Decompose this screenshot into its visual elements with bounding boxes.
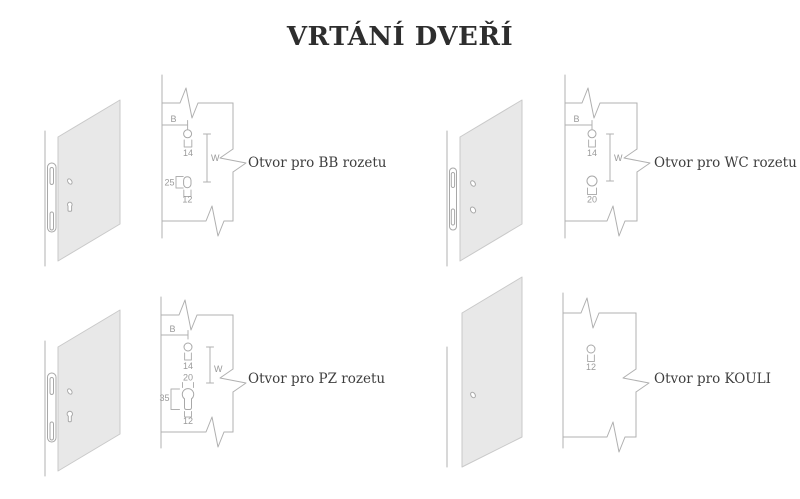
door-panel	[462, 277, 522, 467]
hole-14-text: 14	[587, 148, 597, 158]
cylinder-height-text: 35	[159, 393, 169, 403]
cylinder-height-extension	[171, 389, 180, 410]
latch	[451, 173, 454, 188]
slot-hole	[184, 177, 191, 188]
diagram-bottom-edge-with-break	[161, 417, 233, 447]
cylinder-top-extension	[183, 383, 194, 388]
dimension-b-text: B	[169, 324, 175, 334]
diagram-bottom-edge-with-break	[563, 422, 636, 452]
hole-12-text: 12	[586, 362, 596, 372]
door-illustration-wc	[447, 100, 522, 266]
deadbolt	[50, 422, 54, 440]
diagram-canvas: B 14 W 25 12	[0, 0, 800, 499]
hole-14	[588, 130, 596, 138]
hole-14-text: 14	[183, 148, 193, 158]
door-illustration-bb	[45, 100, 120, 266]
drilling-diagram-kouli: 12	[563, 293, 649, 452]
label-bb-rosette: Otvor pro BB rozetu	[248, 155, 386, 171]
dimension-b-text: B	[573, 114, 579, 124]
diagram-top-edge-with-break	[563, 298, 636, 328]
hole-14	[184, 130, 192, 138]
hole-14-text: 14	[183, 361, 193, 371]
deadbolt	[50, 212, 54, 230]
label-pz-rosette: Otvor pro PZ rozetu	[248, 371, 385, 387]
door-drilling-diagram-page: VRTÁNÍ DVEŘÍ B 14	[0, 0, 800, 499]
hole-14-extension	[589, 140, 596, 147]
break-mark	[220, 369, 246, 392]
break-mark	[624, 149, 650, 172]
dimension-b-text: B	[170, 114, 176, 124]
dimension-w-text: W	[614, 153, 623, 163]
diagram-bottom-edge-with-break	[565, 206, 637, 236]
slot-width-text: 12	[182, 195, 192, 205]
drilling-diagram-bb: B 14 W 25 12	[162, 75, 246, 238]
door-illustration-kouli	[447, 277, 522, 467]
deadbolt	[451, 209, 454, 225]
hole-14	[184, 343, 192, 351]
break-mark	[623, 369, 649, 392]
door-panel	[460, 100, 522, 261]
hole-12-extension	[588, 355, 595, 362]
latch	[50, 378, 54, 395]
hole-14-extension	[185, 353, 192, 360]
hole-14-extension	[184, 140, 192, 147]
label-wc-rosette: Otvor pro WC rozetu	[654, 155, 797, 171]
latch	[50, 168, 54, 185]
drilling-diagram-wc: B 14 W 20	[565, 75, 650, 238]
dimension-w-text: W	[214, 364, 223, 374]
label-kouli: Otvor pro KOULI	[654, 371, 771, 387]
diagram-bottom-edge-with-break	[162, 206, 233, 236]
hole-20	[587, 176, 597, 186]
hole-20-text: 20	[587, 195, 597, 205]
bb-keyhole	[68, 202, 73, 211]
cylinder-bottom-width-text: 12	[183, 416, 193, 426]
cylinder-top-width-text: 20	[183, 373, 193, 383]
slot-height-text: 25	[164, 178, 174, 188]
door-illustration-pz	[45, 310, 120, 476]
break-mark	[220, 149, 246, 172]
pz-cylinder-keyhole	[67, 411, 72, 421]
slot-height-extension	[176, 177, 183, 189]
hole-12	[587, 345, 595, 353]
dimension-w-text: W	[211, 153, 220, 163]
drilling-diagram-pz: B 14 W 20 35 12	[159, 297, 246, 448]
cylinder-keyhole	[182, 389, 193, 410]
